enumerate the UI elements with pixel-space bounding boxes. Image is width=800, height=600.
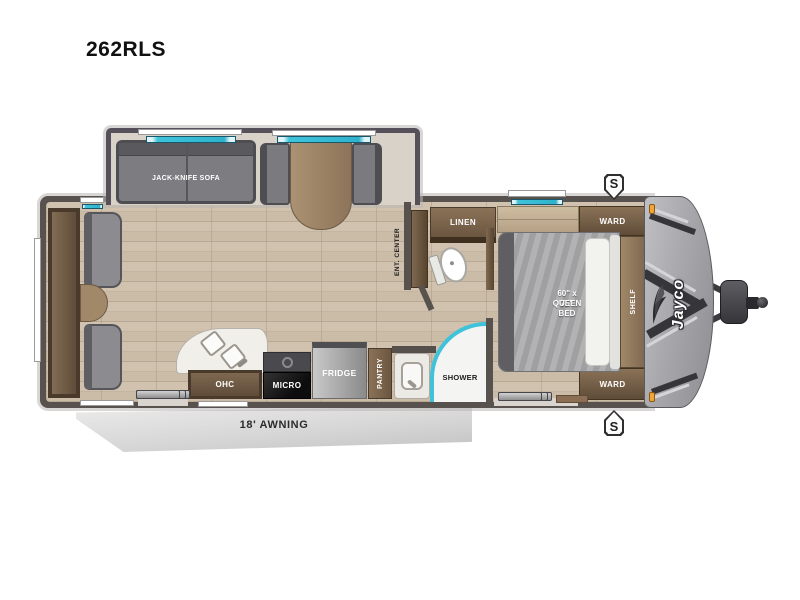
ent-center-label: ENT. CENTER [391, 214, 404, 290]
dinette-bench-right [352, 143, 382, 205]
speaker-marker-bottom: S [604, 410, 624, 436]
rear-chair-top [84, 212, 122, 288]
step-bar [136, 390, 180, 399]
sofa-window-frame [138, 129, 242, 135]
bed-label: 60" x 75" QUEEN BED [516, 289, 584, 299]
corner-window-glass [82, 204, 103, 209]
model-title: 262RLS [86, 38, 166, 62]
kitchen-ohc-label: OHC [188, 380, 262, 389]
wardrobe-rear: WARD [579, 368, 646, 400]
shower-label: SHOWER [443, 373, 478, 382]
step-bar [498, 392, 542, 401]
floorplan-canvas: 262RLS 18' AWNING JACK-KNIFE SOFA OHC OH… [0, 0, 800, 600]
dinette-table [290, 140, 352, 230]
bed-edge [610, 235, 620, 369]
speaker-label: S [604, 176, 624, 191]
speaker-label: S [604, 419, 624, 434]
sofa-label: JACK-KNIFE SOFA [119, 175, 253, 182]
microwave: MICRO [263, 372, 311, 399]
rear-ohc-panel [52, 212, 76, 394]
rear-ohc-cabinet [48, 208, 80, 398]
cooktop-burner [282, 357, 293, 368]
bottom-window-1 [80, 400, 134, 406]
front-cap: Jayco [644, 196, 714, 408]
sofa-divider [186, 143, 188, 201]
jayco-bird-icon [647, 275, 669, 329]
shelf: SHELF [620, 236, 646, 368]
bed-type-label: QUEEN BED [550, 299, 584, 319]
shelf-label: SHELF [630, 289, 637, 314]
dresser-divider [498, 219, 578, 220]
dinette-window-glass [277, 136, 371, 143]
jack-knife-sofa: JACK-KNIFE SOFA [116, 140, 256, 204]
dinette-bench-left [260, 143, 290, 205]
wardrobe-front-label: WARD [599, 217, 625, 226]
bath-partition-upper [486, 228, 494, 290]
marker-light-top [649, 204, 655, 214]
hitch-ball [757, 297, 768, 308]
door-mat [556, 395, 588, 403]
awning: 18' AWNING [76, 406, 472, 452]
cooktop [263, 352, 311, 372]
rear-chair-bottom [84, 324, 122, 390]
entry-door-rear [138, 398, 188, 406]
rear-window-frame [34, 238, 41, 362]
propane-cover [720, 280, 748, 324]
marker-light-bottom [649, 392, 655, 402]
pantry: PANTRY [368, 348, 392, 399]
bottom-window-2 [198, 401, 248, 407]
fridge: FRIDGE [312, 342, 367, 399]
awning-label: 18' AWNING [240, 419, 309, 431]
bedroom-window-frame [508, 190, 566, 197]
speaker-marker-top: S [604, 174, 624, 200]
fridge-label: FRIDGE [322, 368, 357, 378]
linen-label: LINEN [450, 218, 476, 227]
pantry-label: PANTRY [377, 358, 384, 389]
wardrobe-rear-label: WARD [599, 380, 625, 389]
queen-bed: 60" x 75" QUEEN BED [498, 232, 620, 372]
microwave-label: MICRO [273, 381, 302, 390]
jayco-logo: Jayco [670, 264, 692, 344]
bath-partition-lower [486, 318, 493, 406]
ent-center-wall [404, 202, 411, 290]
ent-center-cabinet [411, 210, 428, 288]
bath-sink-trim [392, 346, 436, 353]
bedroom-window-glass [511, 199, 563, 205]
bed-foot [499, 233, 514, 371]
bedroom-dresser [497, 206, 579, 233]
corner-window-frame [80, 197, 104, 203]
sofa-window-glass [146, 136, 236, 143]
bed-pillow [585, 238, 610, 366]
bath-sink [394, 353, 430, 399]
kitchen-ohc-cabinet: OHC [188, 370, 262, 399]
